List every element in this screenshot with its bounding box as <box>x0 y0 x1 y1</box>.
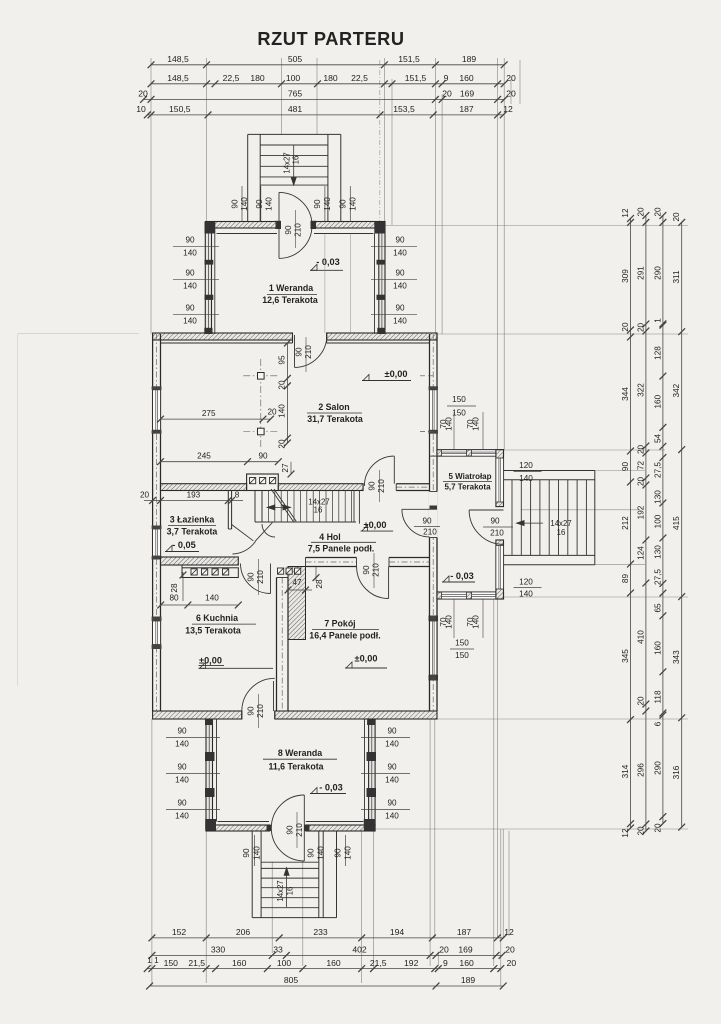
svg-text:90: 90 <box>395 303 405 312</box>
svg-text:22,5: 22,5 <box>223 73 240 83</box>
svg-text:194: 194 <box>390 927 405 937</box>
svg-text:140: 140 <box>240 197 249 211</box>
svg-text:20: 20 <box>653 207 662 217</box>
svg-text:13,5 Terakota: 13,5 Terakota <box>185 626 241 636</box>
svg-text:20: 20 <box>278 380 287 390</box>
svg-text:90: 90 <box>362 565 371 575</box>
svg-text:169: 169 <box>458 945 473 955</box>
svg-text:28: 28 <box>315 579 324 589</box>
svg-text:152: 152 <box>172 927 187 937</box>
svg-text:RZUT PARTERU: RZUT PARTERU <box>257 29 404 49</box>
svg-text:90: 90 <box>231 199 240 209</box>
svg-text:20: 20 <box>267 408 277 417</box>
svg-text:415: 415 <box>672 516 681 530</box>
svg-text:90: 90 <box>286 825 295 835</box>
svg-text:90: 90 <box>284 225 293 235</box>
svg-text:765: 765 <box>288 89 303 99</box>
svg-text:140: 140 <box>349 197 358 211</box>
svg-text:12,6 Terakota: 12,6 Terakota <box>262 295 318 305</box>
svg-text:150: 150 <box>452 395 466 404</box>
svg-text:128: 128 <box>653 346 662 360</box>
svg-text:90: 90 <box>339 199 348 209</box>
svg-text:20: 20 <box>442 89 452 99</box>
svg-text:140: 140 <box>265 197 274 211</box>
svg-text:72: 72 <box>636 461 645 471</box>
svg-text:187: 187 <box>459 104 474 114</box>
svg-text:20: 20 <box>621 322 630 332</box>
svg-text:90: 90 <box>621 462 630 472</box>
svg-text:140: 140 <box>175 776 189 785</box>
svg-text:27,5: 27,5 <box>653 462 662 478</box>
svg-text:±0,00: ±0,00 <box>355 654 378 664</box>
svg-text:- 0,03: - 0,03 <box>316 257 340 267</box>
svg-text:90: 90 <box>334 848 343 858</box>
svg-text:22,5: 22,5 <box>351 73 368 83</box>
svg-text:140: 140 <box>385 740 399 749</box>
svg-text:90: 90 <box>255 199 264 209</box>
svg-text:140: 140 <box>519 590 533 599</box>
svg-text:344: 344 <box>621 387 630 401</box>
svg-text:5,7 Terakota: 5,7 Terakota <box>444 483 491 492</box>
svg-text:505: 505 <box>288 54 303 64</box>
svg-text:322: 322 <box>636 383 645 397</box>
svg-text:90: 90 <box>295 347 304 357</box>
svg-text:90: 90 <box>242 848 251 858</box>
svg-text:- 0,03: - 0,03 <box>450 571 474 581</box>
svg-text:- 0,05: - 0,05 <box>172 540 196 550</box>
svg-text:90: 90 <box>177 727 187 736</box>
svg-text:11,6 Terakota: 11,6 Terakota <box>268 762 323 772</box>
svg-text:140: 140 <box>323 197 332 211</box>
svg-text:153,5: 153,5 <box>393 104 415 114</box>
svg-text:160: 160 <box>653 641 662 655</box>
svg-text:7 Pokój: 7 Pokój <box>324 619 355 629</box>
svg-text:120: 120 <box>519 578 533 587</box>
svg-text:180: 180 <box>323 73 338 83</box>
svg-text:309: 309 <box>621 269 630 283</box>
svg-text:9: 9 <box>444 73 449 83</box>
svg-text:140: 140 <box>393 282 407 291</box>
svg-text:275: 275 <box>202 409 216 418</box>
svg-text:180: 180 <box>250 73 265 83</box>
svg-text:90: 90 <box>307 848 316 858</box>
svg-text:- 0,03: - 0,03 <box>319 783 343 793</box>
svg-text:2 Salon: 2 Salon <box>318 402 349 412</box>
svg-text:10: 10 <box>136 104 146 114</box>
svg-text:314: 314 <box>621 764 630 778</box>
svg-text:140: 140 <box>519 474 533 483</box>
svg-text:130: 130 <box>653 490 662 504</box>
svg-text:16,4 Panele podł.: 16,4 Panele podł. <box>309 631 380 641</box>
svg-text:31,7 Terakota: 31,7 Terakota <box>307 414 363 424</box>
svg-text:12: 12 <box>621 828 630 838</box>
svg-text:12: 12 <box>621 208 630 218</box>
svg-text:8 Weranda: 8 Weranda <box>278 748 322 758</box>
svg-text:160: 160 <box>459 958 474 968</box>
svg-text:140: 140 <box>385 776 399 785</box>
svg-text:20: 20 <box>505 945 515 955</box>
svg-text:140: 140 <box>175 812 189 821</box>
svg-text:20: 20 <box>506 89 516 99</box>
svg-text:189: 189 <box>461 975 476 985</box>
svg-text:12: 12 <box>504 927 514 937</box>
svg-text:140: 140 <box>472 417 481 431</box>
svg-text:148,5: 148,5 <box>167 54 189 64</box>
svg-text:20: 20 <box>138 89 148 99</box>
svg-text:90: 90 <box>258 452 268 461</box>
svg-text:90: 90 <box>387 727 397 736</box>
svg-text:151,5: 151,5 <box>405 73 427 83</box>
svg-text:342: 342 <box>672 383 681 397</box>
svg-text:210: 210 <box>294 223 303 237</box>
svg-text:16: 16 <box>557 528 566 537</box>
svg-text:90: 90 <box>247 572 256 582</box>
svg-text:140: 140 <box>175 740 189 749</box>
svg-text:90: 90 <box>395 269 405 278</box>
svg-text:5 Wiatrołap: 5 Wiatrołap <box>448 472 491 481</box>
svg-text:140: 140 <box>183 282 197 291</box>
svg-text:210: 210 <box>256 570 265 584</box>
svg-text:140: 140 <box>472 615 481 629</box>
svg-text:343: 343 <box>672 650 681 664</box>
svg-text:21,5: 21,5 <box>370 958 387 968</box>
svg-text:90: 90 <box>387 763 397 772</box>
svg-text:192: 192 <box>404 958 419 968</box>
svg-text:9: 9 <box>443 958 448 968</box>
svg-text:90: 90 <box>368 481 377 491</box>
svg-text:140: 140 <box>253 846 262 860</box>
svg-text:291: 291 <box>636 266 645 280</box>
svg-text:140: 140 <box>445 417 454 431</box>
svg-text:90: 90 <box>185 235 195 244</box>
svg-text:330: 330 <box>211 945 226 955</box>
svg-text:20: 20 <box>636 445 645 455</box>
svg-text:8: 8 <box>235 491 240 500</box>
svg-text:290: 290 <box>653 266 662 280</box>
svg-text:124: 124 <box>636 546 645 560</box>
svg-text:20: 20 <box>636 696 645 706</box>
svg-text:189: 189 <box>462 54 477 64</box>
svg-text:65: 65 <box>653 603 662 613</box>
svg-text:90: 90 <box>395 235 405 244</box>
svg-text:150: 150 <box>455 651 469 660</box>
svg-text:1: 1 <box>653 318 662 323</box>
svg-text:160: 160 <box>326 958 341 968</box>
svg-text:210: 210 <box>295 823 304 837</box>
svg-text:±0,00: ±0,00 <box>364 520 387 530</box>
svg-text:14x27: 14x27 <box>550 519 571 528</box>
svg-text:187: 187 <box>457 927 472 937</box>
svg-text:1 1: 1 1 <box>147 956 159 965</box>
svg-text:290: 290 <box>653 761 662 775</box>
svg-text:169: 169 <box>460 89 475 99</box>
svg-text:410: 410 <box>636 630 645 644</box>
svg-text:140: 140 <box>278 404 287 418</box>
svg-text:150: 150 <box>164 958 179 968</box>
svg-text:160: 160 <box>459 73 474 83</box>
svg-text:140: 140 <box>205 594 219 603</box>
svg-text:160: 160 <box>232 958 247 968</box>
svg-text:6: 6 <box>653 721 662 726</box>
svg-text:210: 210 <box>304 345 313 359</box>
svg-text:192: 192 <box>636 505 645 519</box>
svg-text:140: 140 <box>393 316 407 325</box>
svg-text:89: 89 <box>621 574 630 584</box>
svg-text:151,5: 151,5 <box>398 54 420 64</box>
svg-text:14x27: 14x27 <box>283 152 292 173</box>
svg-text:90: 90 <box>490 517 500 526</box>
svg-text:210: 210 <box>377 479 386 493</box>
svg-text:100: 100 <box>277 958 292 968</box>
svg-text:100: 100 <box>286 73 301 83</box>
svg-text:6 Kuchnia: 6 Kuchnia <box>196 613 238 623</box>
svg-text:140: 140 <box>445 615 454 629</box>
svg-text:150,5: 150,5 <box>169 104 191 114</box>
svg-text:140: 140 <box>183 316 197 325</box>
svg-text:20: 20 <box>506 73 516 83</box>
svg-text:316: 316 <box>672 765 681 779</box>
svg-text:805: 805 <box>284 975 299 985</box>
svg-text:12: 12 <box>503 104 513 114</box>
svg-text:3,7 Terakota: 3,7 Terakota <box>167 527 218 537</box>
svg-text:118: 118 <box>653 690 662 703</box>
svg-text:21,5: 21,5 <box>188 958 205 968</box>
svg-text:210: 210 <box>256 704 265 718</box>
svg-text:±0,00: ±0,00 <box>199 656 222 666</box>
svg-text:54: 54 <box>653 434 662 444</box>
svg-text:16: 16 <box>314 506 323 515</box>
svg-text:90: 90 <box>177 763 187 772</box>
svg-text:148,5: 148,5 <box>167 73 189 83</box>
svg-text:20: 20 <box>653 823 662 833</box>
svg-text:4 Hol: 4 Hol <box>319 532 341 542</box>
svg-text:90: 90 <box>422 517 432 526</box>
svg-text:140: 140 <box>393 248 407 257</box>
svg-text:100: 100 <box>653 514 662 528</box>
svg-text:90: 90 <box>247 706 256 716</box>
svg-text:33: 33 <box>273 945 283 955</box>
svg-text:140: 140 <box>183 248 197 257</box>
svg-text:140: 140 <box>344 846 353 860</box>
svg-text:27,5: 27,5 <box>653 569 662 585</box>
svg-text:311: 311 <box>672 270 681 283</box>
svg-text:1 Weranda: 1 Weranda <box>269 283 313 293</box>
svg-text:345: 345 <box>621 649 630 663</box>
svg-text:7,5 Panele podł.: 7,5 Panele podł. <box>308 544 375 554</box>
svg-text:212: 212 <box>621 516 630 530</box>
svg-text:20: 20 <box>636 477 645 487</box>
svg-text:20: 20 <box>278 439 287 449</box>
svg-text:16: 16 <box>286 887 295 896</box>
svg-text:20: 20 <box>507 958 517 968</box>
svg-text:90: 90 <box>185 269 195 278</box>
svg-text:90: 90 <box>387 799 397 808</box>
svg-text:120: 120 <box>519 461 533 470</box>
svg-text:402: 402 <box>352 945 367 955</box>
svg-text:210: 210 <box>490 529 504 538</box>
svg-text:481: 481 <box>288 104 303 114</box>
svg-text:16: 16 <box>292 156 301 165</box>
svg-text:14x27: 14x27 <box>276 880 285 901</box>
svg-text:27: 27 <box>281 463 290 473</box>
svg-text:3 Łazienka: 3 Łazienka <box>170 515 215 525</box>
svg-text:95: 95 <box>278 355 287 365</box>
svg-text:20: 20 <box>439 945 449 955</box>
svg-text:210: 210 <box>423 528 437 537</box>
svg-text:150: 150 <box>455 639 469 648</box>
svg-text:±0,00: ±0,00 <box>385 369 408 379</box>
svg-text:28: 28 <box>170 583 179 593</box>
svg-text:296: 296 <box>636 763 645 777</box>
svg-text:90: 90 <box>313 199 322 209</box>
svg-text:210: 210 <box>372 563 381 577</box>
svg-text:47: 47 <box>292 578 302 587</box>
svg-text:206: 206 <box>236 927 251 937</box>
svg-text:20: 20 <box>636 323 645 333</box>
svg-text:245: 245 <box>197 452 211 461</box>
svg-text:20: 20 <box>140 491 150 500</box>
svg-text:130: 130 <box>653 545 662 559</box>
svg-text:20: 20 <box>672 212 681 222</box>
svg-text:90: 90 <box>185 303 195 312</box>
svg-text:20: 20 <box>636 826 645 836</box>
svg-text:233: 233 <box>313 927 328 937</box>
svg-text:90: 90 <box>177 799 187 808</box>
svg-text:160: 160 <box>653 394 662 408</box>
svg-text:140: 140 <box>385 812 399 821</box>
svg-text:80: 80 <box>169 594 179 603</box>
svg-text:20: 20 <box>636 207 645 217</box>
svg-text:140: 140 <box>317 846 326 860</box>
svg-text:193: 193 <box>187 491 201 500</box>
